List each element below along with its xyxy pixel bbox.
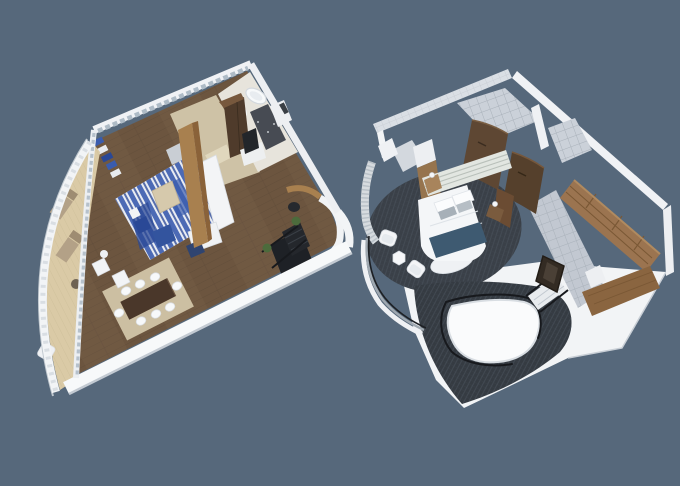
plant	[263, 244, 272, 253]
tile-star	[267, 131, 269, 133]
tile-star	[273, 123, 275, 125]
tile-star	[257, 121, 259, 123]
stair-void-floor	[448, 300, 540, 362]
floorplan-render-canvas	[0, 0, 680, 486]
plant	[292, 217, 301, 226]
round-table	[100, 250, 108, 258]
floorplan-scene	[0, 0, 680, 486]
desk-chair	[288, 202, 300, 212]
hex-side-table	[393, 251, 405, 265]
